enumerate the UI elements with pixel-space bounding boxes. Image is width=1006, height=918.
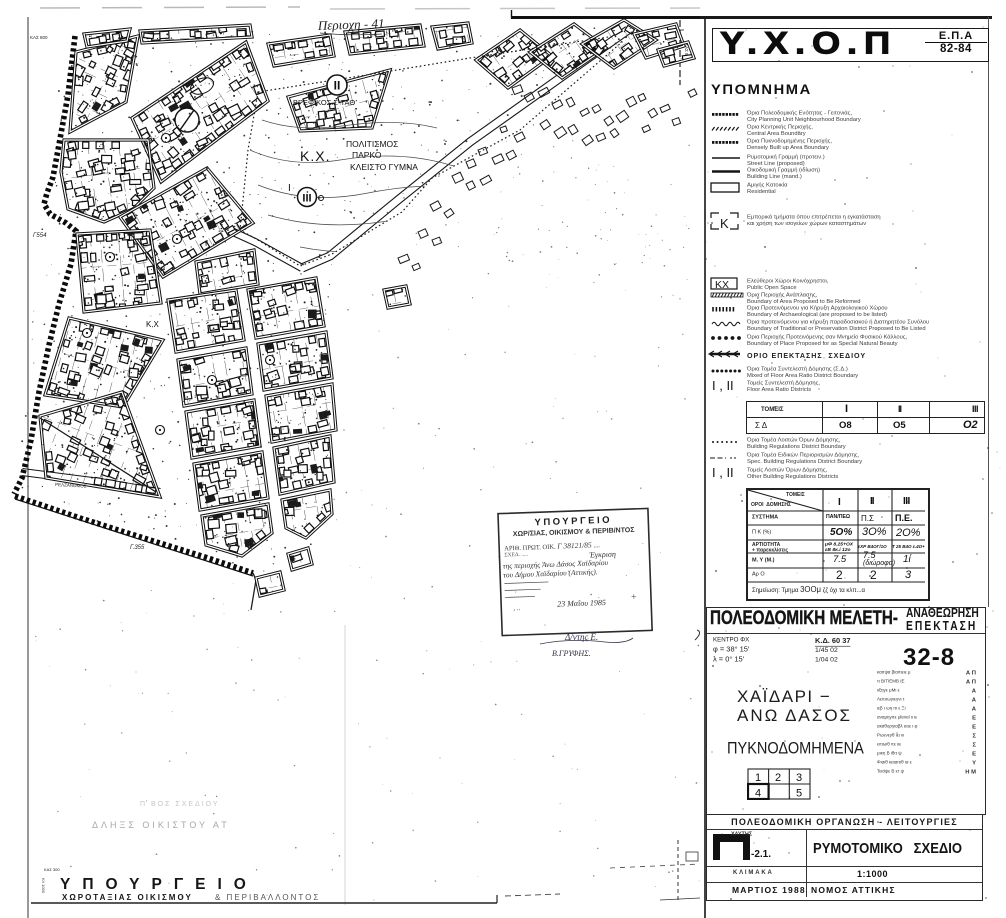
svg-text:23 Μαΐου 1985: 23 Μαΐου 1985 [557, 598, 606, 609]
svg-text:ΑΡΙΘ. ΠΡΩΤ. ΟΙΚ. Γ 38121/85 ..: ΑΡΙΘ. ΠΡΩΤ. ΟΙΚ. Γ 38121/85 .... [504, 540, 600, 552]
svg-text:Γ554: Γ554 [33, 233, 47, 239]
svg-text:ΧΩΡΟΤΑΞΙΑΣ ΟΙΚΙΣΜΟΥ: ΧΩΡΟΤΑΞΙΑΣ ΟΙΚΙΣΜΟΥ [62, 893, 193, 902]
svg-text:Κ.Χ: Κ.Χ [146, 320, 160, 329]
svg-text:& ΠΕΡΙΒΑΛΛΟΝΤΟΣ: & ΠΕΡΙΒΑΛΛΟΝΤΟΣ [215, 893, 320, 902]
svg-text:Κ.Χ.: Κ.Χ. [300, 148, 330, 164]
svg-text:ΙΙΙ: ΙΙΙ [302, 193, 311, 205]
svg-text:του Δήμου Χαϊδαρίου (Αττικής).: του Δήμου Χαϊδαρίου (Αττικής). [503, 567, 598, 579]
svg-text:, ..: , .. [513, 604, 521, 612]
svg-text:ΚΛ 1000: ΚΛ 1000 [41, 878, 46, 894]
svg-text:ΡΕΛΖΑΝΘΜΟΣ: ΡΕΛΖΑΝΘΜΟΣ [55, 482, 87, 489]
svg-text:ΥΠΟΥΡΓΕΙΟ: ΥΠΟΥΡΓΕΙΟ [534, 515, 612, 529]
svg-text:ΠΟΛΙΤΙΣΜΟΣ: ΠΟΛΙΤΙΣΜΟΣ [346, 139, 398, 149]
svg-text:ΙΙ: ΙΙ [334, 79, 341, 93]
svg-text:ΚΑΣ 300: ΚΑΣ 300 [44, 867, 60, 872]
svg-text:ΥΠΟΥΡΓΕΙΟ: ΥΠΟΥΡΓΕΙΟ [60, 876, 258, 893]
svg-text:ΔΛΗΞΣ ΟΙΚΙΣΤΟΥ ΑΤ: ΔΛΗΞΣ ΟΙΚΙΣΤΟΥ ΑΤ [92, 820, 230, 830]
svg-text:Περιοχη - 41: Περιοχη - 41 [317, 16, 385, 33]
svg-text:Γ.355: Γ.355 [130, 545, 145, 551]
svg-text:ΠΑΡΚΟ: ΠΑΡΚΟ [352, 150, 382, 160]
svg-text:ΧΩΡ/ΣΙΑΣ, ΟΙΚΙΣΜΟΥ & ΠΕΡΙΒ/ΝΤΟ: ΧΩΡ/ΣΙΑΣ, ΟΙΚΙΣΜΟΥ & ΠΕΡΙΒ/ΝΤΟΣ [513, 527, 635, 538]
svg-text:ΣΧΕΔ. .....: ΣΧΕΔ. ..... [504, 552, 529, 559]
svg-text:Π ΒΟΣ ΣΧΕΔΙΟΥ: Π ΒΟΣ ΣΧΕΔΙΟΥ [140, 801, 220, 808]
svg-text:ΚΑΣ 800: ΚΑΣ 800 [30, 35, 48, 40]
svg-text:Β.ΓΡΥΦΗΣ.: Β.ΓΡΥΦΗΣ. [552, 649, 591, 658]
svg-text:ΒΡΕΦΙΚΟΣ Σ-ΤΑΘ: ΒΡΕΦΙΚΟΣ Σ-ΤΑΘ [293, 98, 355, 107]
svg-text:+: + [631, 592, 637, 603]
svg-text:Ι: Ι [288, 183, 291, 194]
